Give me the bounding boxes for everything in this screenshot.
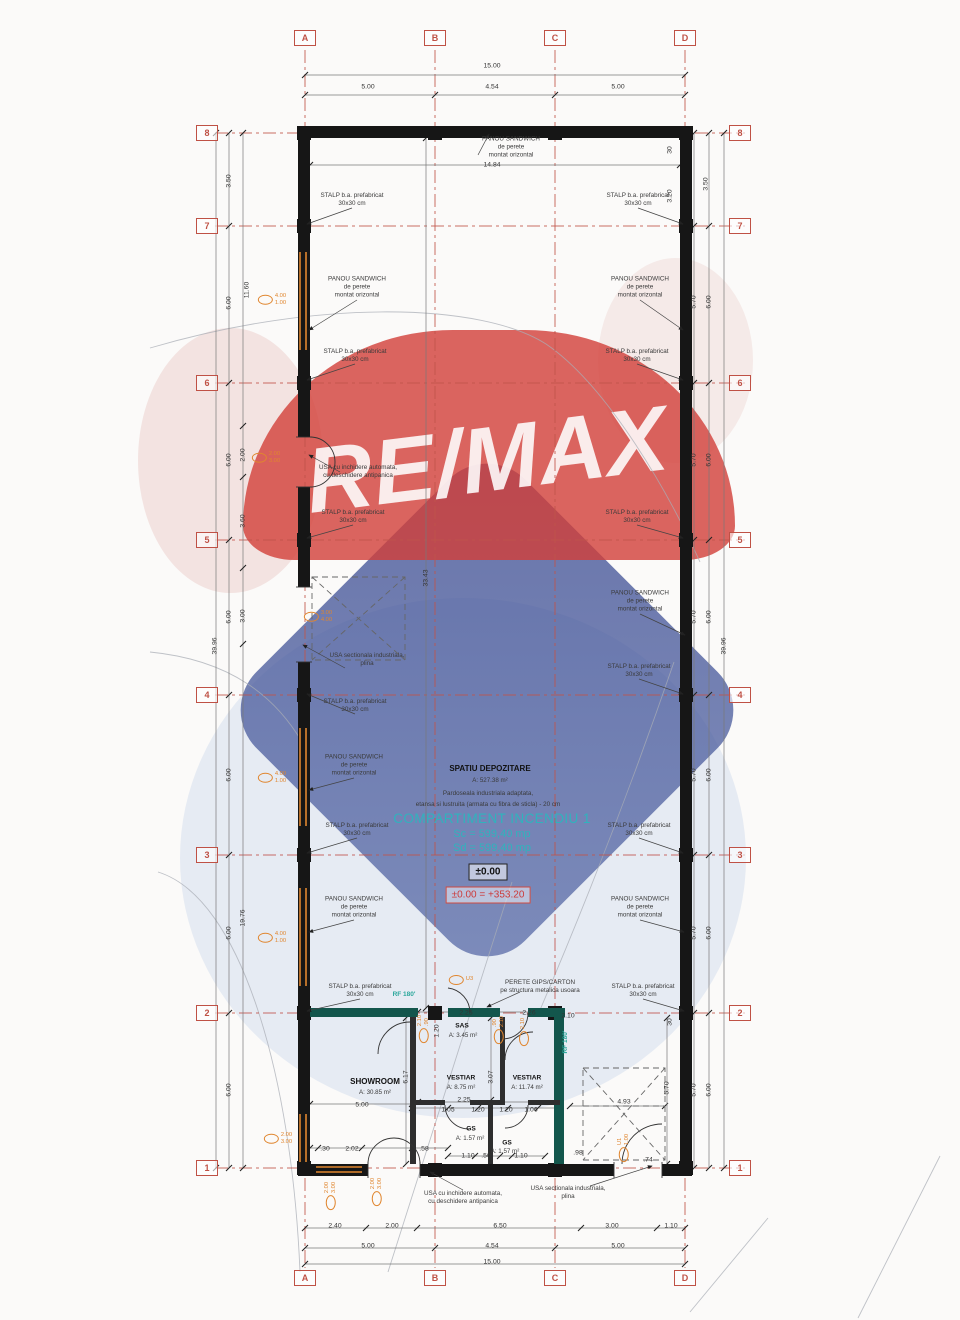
- grid-bubble-row-4: 4: [729, 687, 751, 703]
- opening-tag-text: 3.004.00: [321, 610, 332, 624]
- plan-note: PANOU SANDWICH de perete montat orizonta…: [325, 754, 383, 779]
- plan-note: PANOU SANDWICH de perete montat orizonta…: [328, 276, 386, 301]
- opening-tag-text: 2.10.90: [417, 1015, 431, 1026]
- opening-tag: U11.00: [617, 1134, 631, 1162]
- grid-bubble-row-3: 3: [196, 847, 218, 863]
- plan-note: Pardoseala industriala adaptata,: [443, 790, 533, 798]
- dimension-label: 14.84: [483, 162, 500, 169]
- opening-tag: 4.001.00: [258, 771, 286, 785]
- plan-note: ±0.00: [469, 864, 508, 881]
- opening-tag-oval: [372, 1191, 382, 1206]
- plan-note: VESTIAR: [513, 1075, 542, 1084]
- opening-tag: 2.003.00: [252, 451, 280, 465]
- opening-tag-oval: [258, 295, 273, 305]
- dimension-label: 6.00: [706, 926, 713, 939]
- grid-bubble-col-C: C: [544, 1270, 566, 1286]
- grid-bubble-col-D: D: [674, 30, 696, 46]
- opening-tag-text: 2.003.00: [281, 1132, 292, 1146]
- plan-note: STALP b.a. prefabricat 30x30 cm: [325, 822, 388, 838]
- plan-note: PANOU SANDWICH de perete montat orizonta…: [611, 896, 669, 921]
- dimension-label: 2.00: [385, 1223, 398, 1230]
- opening-tag: 2.003.00: [324, 1182, 338, 1210]
- dimension-label: 6.00: [226, 610, 233, 623]
- grid-bubble-row-1: 1: [196, 1160, 218, 1176]
- dimension-label: 6.00: [706, 453, 713, 466]
- plan-note: SPATIU DEPOZITARE: [449, 764, 530, 774]
- dimension-label: 1.06: [524, 1107, 537, 1114]
- opening-tag-oval: [449, 975, 464, 985]
- opening-tag-text: 2.003.00: [269, 451, 280, 465]
- dimension-label: 6.00: [226, 768, 233, 781]
- dimension-label: 2.40: [328, 1223, 341, 1230]
- grid-bubble-row-2: 2: [729, 1005, 751, 1021]
- plan-note: ±0.00 = +353.20: [446, 887, 531, 904]
- opening-tag-oval: [258, 773, 273, 783]
- grid-bubble-row-7: 7: [196, 218, 218, 234]
- dimension-label: 1.20: [471, 1107, 484, 1114]
- opening-tag-text: 2.10: [520, 1018, 527, 1029]
- plan-note: PERETE GIPS/CARTON pe structura metalica…: [500, 979, 579, 995]
- grid-bubble-row-7: 7: [729, 218, 751, 234]
- dimension-label: 2.25: [459, 1010, 472, 1017]
- plan-note: A: 3.45 m²: [449, 1032, 478, 1040]
- opening-tag-text: U11.00: [617, 1134, 631, 1145]
- plan-note: A: 8.75 m²: [447, 1084, 476, 1092]
- grid-bubble-row-3: 3: [729, 847, 751, 863]
- plan-note: STALP b.a. prefabricat 30x30 cm: [606, 192, 669, 208]
- dimension-label: .30: [320, 1146, 329, 1153]
- dimension-label: 3.07: [488, 1070, 495, 1083]
- dimension-label: 3.00: [240, 609, 247, 622]
- dimension-label: 30: [667, 146, 674, 154]
- dimension-label: 5.70: [664, 1081, 671, 1094]
- plan-note: SHOWROOM: [350, 1077, 400, 1087]
- dimension-label: 6.00: [706, 610, 713, 623]
- opening-tag: 2.10: [519, 1018, 529, 1046]
- dimension-label: 1.05: [441, 1107, 454, 1114]
- plan-note: VESTIAR: [447, 1075, 476, 1084]
- opening-tag-text: 4.001.00: [275, 931, 286, 945]
- opening-tag-oval: [619, 1147, 629, 1162]
- plan-note: A: 30.85 m²: [359, 1089, 391, 1097]
- opening-tag-text: .902.10: [492, 1016, 506, 1027]
- opening-tag: 3.004.00: [304, 610, 332, 624]
- dimension-label: 15.00: [483, 1259, 500, 1266]
- grid-bubble-col-C: C: [544, 30, 566, 46]
- plan-note: PANOU SANDWICH de perete montat orizonta…: [482, 136, 540, 161]
- plan-note: USA sectionala industriala, plina: [330, 652, 405, 668]
- floor-plan-sheet: RE/MAX SPATIU DEPOZITAREA: 527.38 m²Pard…: [0, 0, 960, 1320]
- opening-tag: 4.001.00: [258, 931, 286, 945]
- dimension-label: 2.02: [345, 1146, 358, 1153]
- plan-note: PANOU SANDWICH de perete montat orizonta…: [325, 896, 383, 921]
- grid-bubble-row-5: 5: [729, 532, 751, 548]
- opening-tag-text: U3: [466, 976, 473, 983]
- dimension-label: 2.10: [561, 1013, 574, 1020]
- dimension-label: 4.54: [485, 84, 498, 91]
- dimension-label: 6.00: [706, 768, 713, 781]
- opening-tag: 2.10.90: [417, 1015, 431, 1043]
- dimension-label: 5.70: [691, 926, 698, 939]
- dimension-label: 6.17: [403, 1070, 410, 1083]
- dimension-label: .74: [643, 1157, 652, 1164]
- plan-note: Sc = 599,40 mp: [453, 827, 530, 841]
- plan-note: COMPARTIMENT INCENDIU 1: [393, 810, 590, 828]
- dimension-label: 1.10: [461, 1153, 474, 1160]
- plan-note: STALP b.a. prefabricat 30x30 cm: [320, 192, 383, 208]
- grid-bubble-row-8: 8: [196, 125, 218, 141]
- plan-note: A: 11.74 m²: [511, 1084, 543, 1092]
- opening-tag-text: 4.001.00: [275, 771, 286, 785]
- dimension-label: 39.96: [212, 637, 219, 654]
- plan-note: SAS: [455, 1023, 469, 1032]
- grid-bubble-row-1: 1: [729, 1160, 751, 1176]
- grid-bubble-row-8: 8: [729, 125, 751, 141]
- grid-bubble-row-5: 5: [196, 532, 218, 548]
- grid-bubble-row-6: 6: [729, 375, 751, 391]
- opening-tag-oval: [419, 1028, 429, 1043]
- dimension-label: .50: [481, 1153, 490, 1160]
- plan-note: STALP b.a. prefabricat 30x30 cm: [605, 509, 668, 525]
- dimension-label: 6.00: [226, 926, 233, 939]
- grid-bubble-row-2: 2: [196, 1005, 218, 1021]
- plan-note: PANOU SANDWICH de perete montat orizonta…: [611, 590, 669, 615]
- dimension-label: 11.60: [244, 282, 251, 299]
- grid-bubble-col-B: B: [424, 1270, 446, 1286]
- opening-tag: U3: [449, 975, 473, 985]
- dimension-label: 5.00: [361, 84, 374, 91]
- dimension-label: 5.70: [691, 768, 698, 781]
- dimension-label: 5.70: [691, 1083, 698, 1096]
- dimension-label: 5.00: [611, 84, 624, 91]
- plan-note: GS: [466, 1126, 476, 1135]
- opening-tag: .902.10: [492, 1016, 506, 1044]
- opening-tag: 4.001.00: [258, 293, 286, 307]
- plan-annotations: SPATIU DEPOZITAREA: 527.38 m²Pardoseala …: [0, 0, 960, 1320]
- dimension-label: 33.43: [423, 569, 430, 586]
- plan-note: USA cu inchidere automata, cu deschidere…: [424, 1190, 502, 1206]
- opening-tag-oval: [258, 933, 273, 943]
- grid-bubble-col-A: A: [294, 1270, 316, 1286]
- dimension-label: 2.25: [457, 1097, 470, 1104]
- plan-note: A: 527.38 m²: [472, 777, 507, 785]
- dimension-label: 4.93: [617, 1099, 630, 1106]
- dimension-label: 1.10: [514, 1153, 527, 1160]
- grid-bubble-col-D: D: [674, 1270, 696, 1286]
- plan-note: STALP b.a. prefabricat 30x30 cm: [607, 663, 670, 679]
- plan-note: STALP b.a. prefabricat 30x30 cm: [321, 509, 384, 525]
- dimension-label: 4.54: [485, 1243, 498, 1250]
- dimension-label: 1.20: [499, 1107, 512, 1114]
- plan-note: Sd = 599,40 mp: [453, 841, 531, 855]
- dimension-label: 5.70: [691, 610, 698, 623]
- opening-tag-oval: [264, 1134, 279, 1144]
- dimension-label: 5.00: [355, 1102, 368, 1109]
- opening-tag-oval: [252, 453, 267, 463]
- plan-note: USA cu inchidere automata, cu deschidere…: [319, 464, 397, 480]
- grid-bubble-col-A: A: [294, 30, 316, 46]
- plan-note: STALP b.a. prefabricat 30x30 cm: [607, 822, 670, 838]
- plan-note: STALP b.a. prefabricat 30x30 cm: [323, 348, 386, 364]
- plan-note: STALP b.a. prefabricat 30x30 cm: [611, 983, 674, 999]
- dimension-label: 6.00: [226, 453, 233, 466]
- dimension-label: 15.00: [483, 63, 500, 70]
- opening-tag-oval: [519, 1031, 529, 1046]
- dimension-label: .98: [573, 1150, 582, 1157]
- grid-bubble-col-B: B: [424, 30, 446, 46]
- opening-tag-text: 2.003.00: [324, 1182, 338, 1193]
- plan-note: etansa si lustruita (armata cu fibra de …: [416, 801, 561, 809]
- dimension-label: 2.26: [522, 1010, 535, 1017]
- dimension-label: 39.96: [721, 637, 728, 654]
- dimension-label: 19.76: [240, 909, 247, 926]
- dimension-label: 3.50: [226, 174, 233, 187]
- dimension-label: 2.00: [240, 448, 247, 461]
- plan-note: PANOU SANDWICH de perete montat orizonta…: [611, 276, 669, 301]
- dimension-label: 6.00: [226, 1083, 233, 1096]
- opening-tag-oval: [494, 1029, 504, 1044]
- plan-note: USA sectionala industriala, plina: [531, 1185, 606, 1201]
- dimension-label: 5.70: [691, 295, 698, 308]
- plan-note: RF 180': [562, 1031, 570, 1054]
- plan-note: A: 1.57 m²: [456, 1135, 485, 1143]
- opening-tag-text: 2.003.00: [370, 1178, 384, 1189]
- dimension-label: 6.00: [706, 295, 713, 308]
- opening-tag-oval: [304, 612, 319, 622]
- dimension-label: 30: [667, 1018, 674, 1026]
- grid-bubble-row-6: 6: [196, 375, 218, 391]
- dimension-label: 5.70: [691, 453, 698, 466]
- dimension-label: 5.00: [611, 1243, 624, 1250]
- opening-tag-oval: [326, 1195, 336, 1210]
- dimension-label: 1.20: [434, 1024, 441, 1037]
- dimension-label: 6.50: [493, 1223, 506, 1230]
- dimension-label: 6.00: [226, 296, 233, 309]
- dimension-label: 3.60: [240, 514, 247, 527]
- dimension-label: 3.20: [667, 189, 674, 202]
- grid-bubble-row-4: 4: [196, 687, 218, 703]
- dimension-label: 1.10: [664, 1223, 677, 1230]
- dimension-label: .58: [419, 1146, 428, 1153]
- dimension-label: 3.50: [703, 177, 710, 190]
- opening-tag: 2.003.00: [264, 1132, 292, 1146]
- opening-tag-text: 4.001.00: [275, 293, 286, 307]
- dimension-label: 6.00: [706, 1083, 713, 1096]
- opening-tag: 2.003.00: [370, 1178, 384, 1206]
- dimension-label: 5.00: [361, 1243, 374, 1250]
- plan-note: STALP b.a. prefabricat 30x30 cm: [605, 348, 668, 364]
- plan-note: STALP b.a. prefabricat 30x30 cm: [328, 983, 391, 999]
- plan-note: RF 180': [393, 991, 416, 999]
- plan-note: STALP b.a. prefabricat 30x30 cm: [323, 698, 386, 714]
- dimension-label: 3.00: [605, 1223, 618, 1230]
